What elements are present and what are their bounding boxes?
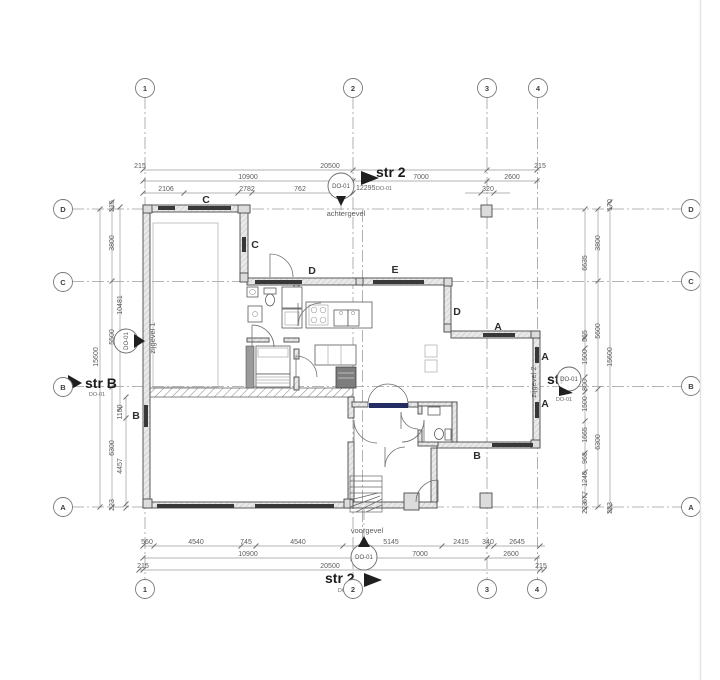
dim-label: 215 <box>109 200 116 212</box>
section-label: str B <box>85 375 117 391</box>
grid-bubble: 2 <box>344 79 363 98</box>
garage-inner-line <box>153 223 218 387</box>
section-marker-right: str DO-01 DO-01 <box>547 367 581 403</box>
dim-label: 20500 <box>320 163 340 170</box>
grid-bubble: A <box>54 498 73 517</box>
dim-label: 2106 <box>158 186 174 193</box>
section-arrow-right-icon <box>364 573 382 587</box>
dim-label: 2600 <box>504 174 520 181</box>
wall-type-label: A <box>541 351 549 363</box>
section-arrow-down-icon <box>336 196 346 206</box>
dim-label: 4540 <box>188 539 204 546</box>
grid-bubble-label: 3 <box>485 585 489 594</box>
grid-bubble-label: C <box>688 277 694 286</box>
grid-bubble-label: B <box>60 383 66 392</box>
dim-label: 1500 <box>582 396 589 412</box>
wall-type-label: D <box>308 265 316 277</box>
grid-bubble: 3 <box>478 79 497 98</box>
dim-label: 1100 <box>117 404 124 419</box>
dim-label: 6635 <box>582 255 589 271</box>
section-bubble-label: DO-01 <box>124 332 130 350</box>
dim-label: 1665 <box>582 427 589 443</box>
grid-bubble: 4 <box>528 580 547 599</box>
grid-bubble: 1 <box>136 580 155 599</box>
wall-type-label: B <box>132 410 140 422</box>
grid-bubble-label: D <box>688 205 694 214</box>
grid-bubble-label: 2 <box>351 585 355 594</box>
dim-label: 10481 <box>117 295 124 315</box>
wall-type-label: A <box>494 321 502 333</box>
dim-label: 560 <box>141 539 153 546</box>
grid-bubble-label: 3 <box>485 84 489 93</box>
dim-label: 215 <box>535 563 547 570</box>
sauna-room <box>246 346 290 388</box>
dining-furniture <box>425 345 437 372</box>
grid-bubble: 2 <box>344 580 363 599</box>
section-value: 12295 <box>356 185 376 192</box>
grid-bubble: D <box>54 200 73 219</box>
dim-labels-left: 215380010481550015600110063004457223 <box>93 200 124 511</box>
grid-bubble: A <box>682 498 701 517</box>
bathroom-fixtures <box>247 287 276 322</box>
facade-label: zijgevel 1 <box>148 322 157 353</box>
grid-bubble-label: B <box>688 382 694 391</box>
section-label: str 2 <box>376 164 406 180</box>
floor-plan-page: DO-01 12295 str 2 DO-01 DO-01 str 2 DO-0… <box>0 0 720 680</box>
facade-label: achtergevel <box>327 209 366 218</box>
dim-label: 2645 <box>509 539 525 546</box>
dim-label: 10900 <box>238 551 258 558</box>
kitchen-island <box>306 302 372 328</box>
section-bubble-label: DO-01 <box>560 377 578 383</box>
wall-type-label: C <box>251 239 259 251</box>
grid-bubble: 3 <box>478 580 497 599</box>
new-door-highlight <box>369 403 408 408</box>
dim-label: 320 <box>482 186 494 193</box>
section-marker-left-wall: DO-01 <box>114 329 145 353</box>
dim-label: 223 <box>582 502 589 514</box>
wall-type-label: A <box>541 398 549 410</box>
grid-bubble: 1 <box>136 79 155 98</box>
dim-label: 5145 <box>383 539 399 546</box>
section-arrow-up-icon <box>358 536 370 547</box>
dim-label: 223 <box>109 499 116 511</box>
wall-type-label: B <box>473 450 481 462</box>
dim-label: 3800 <box>595 235 602 251</box>
dim-label: 10900 <box>238 174 258 181</box>
grid-bubble-label: A <box>688 503 694 512</box>
dim-label: 4540 <box>290 539 306 546</box>
grid-bubble: D <box>682 200 701 219</box>
dim-label: 340 <box>482 539 494 546</box>
dim-label: 170 <box>607 199 614 211</box>
grid-bubble: C <box>54 273 73 292</box>
dim-label: 2782 <box>239 186 255 193</box>
wall-type-label: E <box>391 264 398 276</box>
dim-label: 2415 <box>453 539 469 546</box>
dim-label: 15600 <box>93 347 100 367</box>
dim-label: 3800 <box>109 235 116 251</box>
facade-label: zijgevel 2 <box>529 366 538 397</box>
grid-bubble-label: 2 <box>351 84 355 93</box>
dim-label: 565 <box>582 330 589 342</box>
wall-type-label: D <box>453 306 461 318</box>
grid-bubble-label: C <box>60 278 66 287</box>
dim-label: 7000 <box>413 174 429 181</box>
dim-label: 20500 <box>320 563 340 570</box>
dim-label: 15600 <box>607 347 614 367</box>
grid-bubble-label: D <box>60 205 66 214</box>
dim-label: 745 <box>240 539 252 546</box>
section-ref: DO-01 <box>376 186 392 192</box>
grid-bubble: B <box>682 377 701 396</box>
section-ref: DO-01 <box>556 397 572 403</box>
dim-label: 2600 <box>503 551 519 558</box>
dim-label: 5500 <box>109 329 116 345</box>
dim-label: 6300 <box>595 434 602 450</box>
dim-label: 215 <box>534 163 546 170</box>
dim-label: 1500 <box>582 349 589 365</box>
grid-bubble-label: A <box>60 503 66 512</box>
dim-label: 6300 <box>109 440 116 456</box>
dim-label: 677 <box>582 491 589 503</box>
grid-bubble: B <box>54 378 73 397</box>
dim-label: 223 <box>607 502 614 514</box>
wall-type-label: C <box>202 194 210 206</box>
section-ref: DO-01 <box>89 392 105 398</box>
grid-bubble: 4 <box>529 79 548 98</box>
dim-label: 1240 <box>582 471 589 487</box>
dim-label: 215 <box>137 563 149 570</box>
dim-label: 968 <box>582 452 589 464</box>
dim-label: 4457 <box>117 458 124 474</box>
dim-label: 762 <box>294 186 306 193</box>
section-marker-left: str B DO-01 <box>68 375 117 398</box>
grid-bubble-label: 1 <box>143 585 147 594</box>
wc-fixtures <box>428 407 451 440</box>
dim-label: 7000 <box>412 551 428 558</box>
grid-bubble-label: 1 <box>143 84 147 93</box>
grid-bubble: C <box>682 272 701 291</box>
facade-label: voorgevel <box>351 526 384 535</box>
dim-labels-bottom: 5604540745454051452415340264510900700026… <box>137 539 547 570</box>
dim-label: 5600 <box>595 323 602 339</box>
section-bubble-label: DO-01 <box>332 184 350 190</box>
hatched-wall-band <box>143 388 353 397</box>
floor-plan: DO-01 12295 str 2 DO-01 DO-01 str 2 DO-0… <box>0 0 720 680</box>
dim-label: 800 <box>582 379 589 391</box>
dim-label: 215 <box>134 163 146 170</box>
section-bubble-label: DO-01 <box>355 555 373 561</box>
